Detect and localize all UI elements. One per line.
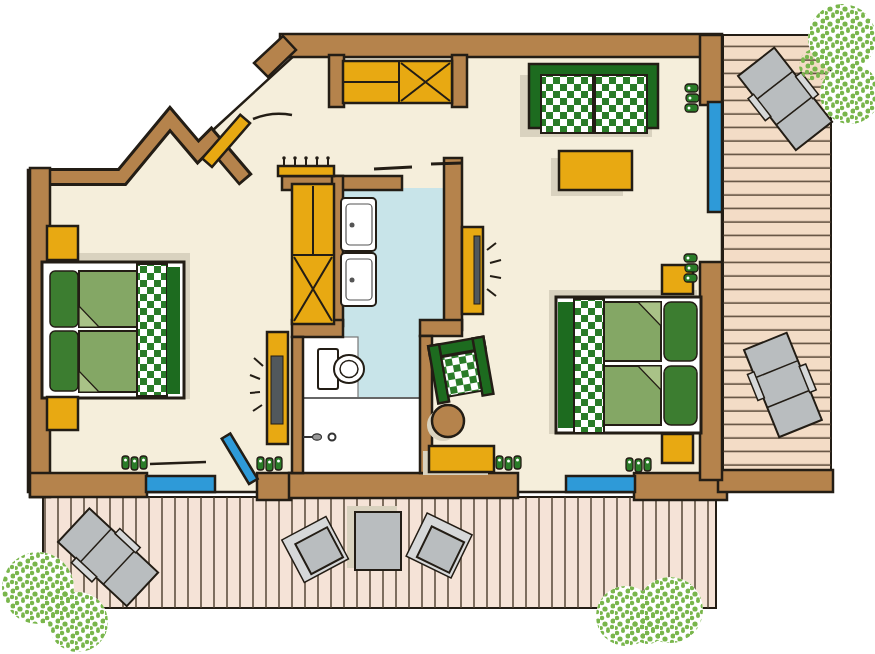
bed-left (42, 253, 190, 399)
bed-foot-strip (167, 267, 180, 394)
bed-right (549, 290, 701, 434)
nightstand (47, 226, 78, 260)
bed-runner-checkered (137, 264, 167, 396)
slippers (257, 457, 282, 471)
coffee-table (551, 151, 632, 196)
bench (423, 446, 494, 475)
east-wall-bottom (700, 262, 722, 480)
bed-pillow (50, 271, 78, 327)
nightstand (662, 434, 693, 463)
slippers (122, 456, 147, 470)
east-wall-top (700, 35, 722, 105)
south-wall-left (30, 473, 147, 497)
south-wall-middle (289, 473, 518, 498)
bed-pillow (664, 366, 697, 425)
bathroom-east-wall-upper (444, 158, 462, 330)
slippers (496, 456, 521, 470)
nightstand (47, 397, 78, 430)
slippers (685, 84, 699, 112)
bed-foot-strip (558, 302, 574, 428)
built-in-wardrobe (343, 61, 452, 103)
south-wall-pillar (257, 473, 291, 500)
tv-screen (474, 236, 480, 304)
bed-pillow (50, 331, 78, 391)
armchair-checkered (428, 337, 493, 404)
deck-right-south-wall (718, 470, 833, 492)
north-wall (280, 34, 722, 57)
niche-cabinet (292, 184, 334, 324)
hall-door-line (431, 163, 462, 164)
slippers (626, 458, 651, 472)
bathroom-east-jog (420, 320, 462, 336)
glass-door-right-room-icon (566, 476, 635, 492)
sofa-cushion (541, 75, 593, 133)
bed-pillow (664, 302, 697, 361)
sofa-cushion (595, 75, 647, 133)
sofa-checkered (520, 64, 658, 137)
glass-door-left-room-icon (146, 476, 215, 492)
bathroom-sliding-door-line (374, 167, 412, 169)
glass-door-east-icon (708, 102, 722, 212)
washbasin-top (341, 198, 376, 251)
bed-runner-checkered (574, 299, 604, 433)
tv-screen (271, 356, 283, 424)
bathroom-west-wall-lower (292, 337, 303, 473)
slippers (684, 254, 698, 282)
floor-plan-drawing (0, 0, 875, 654)
washbasin-bottom (341, 253, 376, 306)
wardrobe-pillar-right (452, 55, 467, 107)
bistro-table (347, 506, 401, 570)
floor-plan-canvas (0, 0, 875, 654)
armchair-cushion (441, 351, 481, 396)
